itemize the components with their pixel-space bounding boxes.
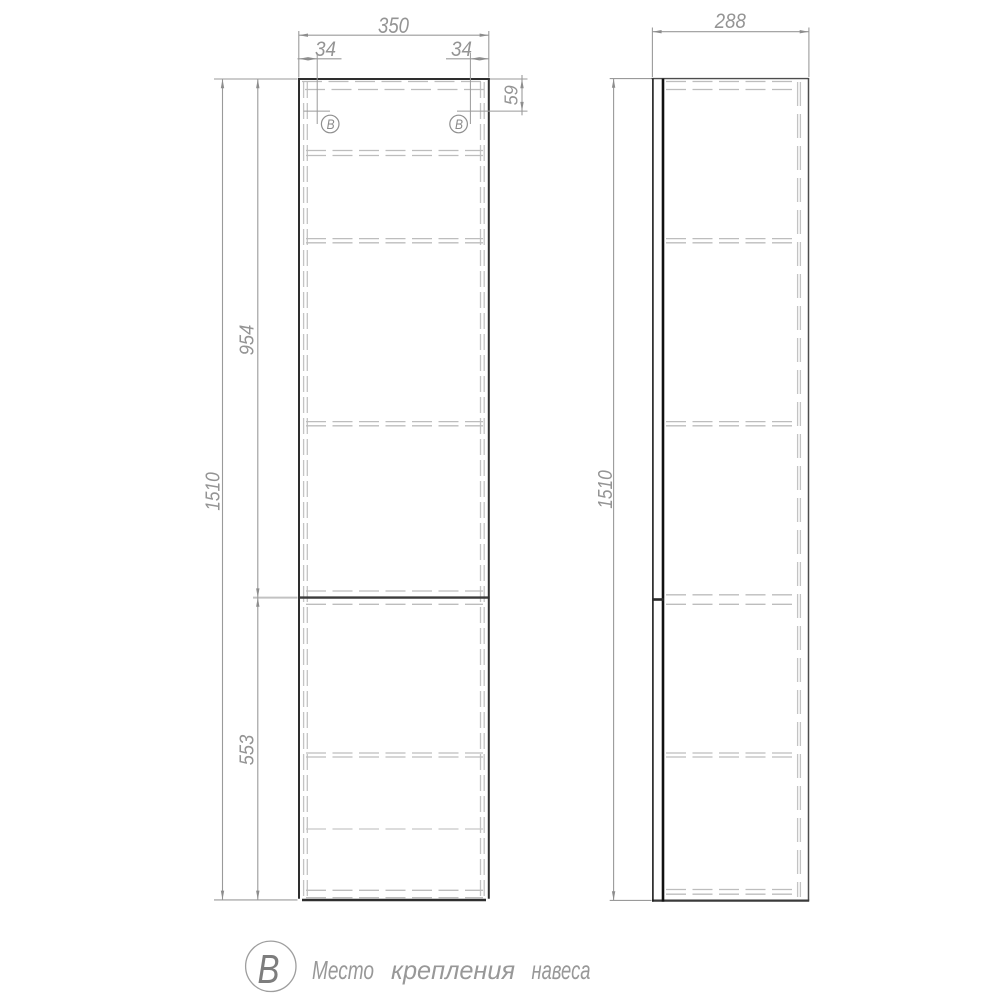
svg-text:34: 34 <box>315 37 336 61</box>
svg-text:553: 553 <box>236 735 258 766</box>
svg-text:B: B <box>455 117 463 132</box>
svg-text:B: B <box>258 946 280 992</box>
svg-text:Место: Место <box>312 955 374 985</box>
svg-text:крепления: крепления <box>391 955 515 985</box>
svg-text:954: 954 <box>236 325 258 356</box>
svg-text:288: 288 <box>714 9 746 33</box>
svg-text:1510: 1510 <box>595 470 617 509</box>
svg-text:1510: 1510 <box>203 472 225 511</box>
svg-text:навеса: навеса <box>532 955 591 985</box>
svg-text:350: 350 <box>378 13 410 38</box>
svg-text:B: B <box>327 117 335 132</box>
svg-text:34: 34 <box>451 37 472 61</box>
svg-text:59: 59 <box>502 85 522 105</box>
